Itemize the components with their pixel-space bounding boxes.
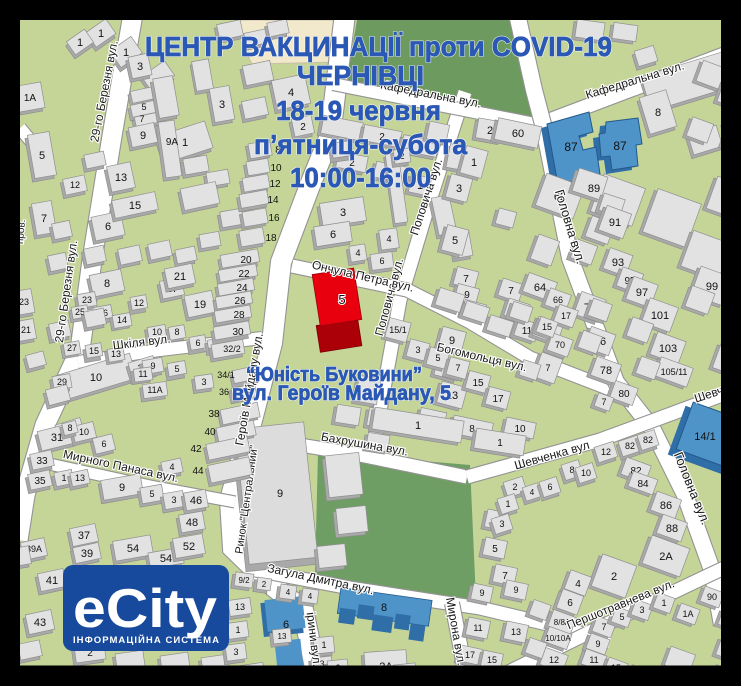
svg-text:7: 7	[601, 397, 606, 407]
svg-text:15: 15	[487, 655, 497, 665]
svg-text:101: 101	[651, 310, 669, 322]
svg-text:52: 52	[183, 541, 195, 553]
svg-text:1: 1	[235, 625, 240, 635]
svg-text:9: 9	[277, 488, 283, 500]
svg-text:2: 2	[611, 571, 617, 583]
svg-text:33: 33	[36, 456, 48, 467]
svg-text:35: 35	[34, 476, 46, 487]
svg-text:103: 103	[659, 343, 677, 355]
svg-text:9/2: 9/2	[238, 576, 250, 585]
svg-text:12: 12	[134, 298, 144, 308]
svg-text:19: 19	[194, 299, 206, 311]
svg-text:21: 21	[21, 325, 31, 335]
svg-text:9: 9	[479, 588, 484, 598]
svg-text:78: 78	[600, 365, 612, 377]
svg-text:3: 3	[171, 495, 176, 505]
svg-text:30: 30	[232, 327, 244, 338]
svg-text:23: 23	[19, 297, 29, 307]
svg-text:9: 9	[119, 482, 125, 494]
svg-text:8: 8	[104, 278, 110, 290]
svg-text:43: 43	[34, 617, 46, 629]
svg-text:86: 86	[660, 500, 672, 512]
svg-text:13: 13	[235, 602, 245, 612]
svg-text:1: 1	[98, 28, 104, 40]
svg-text:9: 9	[595, 639, 600, 649]
svg-text:6: 6	[379, 256, 384, 266]
svg-text:10: 10	[514, 424, 526, 435]
svg-text:14: 14	[117, 315, 127, 325]
svg-text:ЦЕНТР ВАКЦИНАЦІЇ проти COVID-1: ЦЕНТР ВАКЦИНАЦІЇ проти COVID-19	[145, 31, 612, 62]
svg-text:2: 2	[262, 580, 267, 589]
svg-text:1: 1	[497, 438, 503, 449]
svg-text:60: 60	[512, 128, 524, 140]
svg-text:46: 46	[190, 495, 202, 507]
svg-text:4: 4	[286, 588, 291, 597]
svg-text:4: 4	[308, 592, 313, 601]
svg-text:13: 13	[75, 473, 85, 483]
svg-text:18: 18	[265, 233, 277, 244]
svg-text:5: 5	[452, 235, 458, 247]
svg-text:20: 20	[240, 255, 252, 266]
svg-text:82: 82	[625, 441, 635, 451]
svg-text:11А: 11А	[147, 385, 162, 395]
svg-text:10/10А: 10/10А	[545, 634, 571, 643]
svg-text:1: 1	[505, 499, 510, 509]
svg-text:32/2: 32/2	[223, 344, 241, 354]
svg-text:17: 17	[561, 311, 571, 321]
svg-text:8: 8	[381, 602, 387, 614]
svg-text:3: 3	[201, 377, 206, 387]
svg-text:12: 12	[70, 180, 80, 190]
svg-text:54: 54	[127, 543, 139, 555]
svg-text:5: 5	[174, 364, 179, 374]
svg-text:7: 7	[601, 622, 606, 632]
svg-text:7: 7	[455, 363, 460, 373]
svg-text:6: 6	[547, 482, 552, 492]
svg-text:2А: 2А	[659, 551, 673, 563]
svg-text:15: 15	[129, 200, 141, 212]
svg-text:12: 12	[269, 179, 281, 190]
svg-text:37: 37	[78, 530, 90, 542]
svg-text:1: 1	[661, 598, 666, 608]
svg-text:3: 3	[219, 99, 225, 111]
svg-text:93: 93	[612, 257, 624, 269]
svg-text:6: 6	[195, 338, 200, 348]
svg-text:21: 21	[174, 271, 186, 283]
svg-text:10: 10	[90, 372, 102, 384]
svg-text:1: 1	[182, 137, 188, 149]
svg-text:23: 23	[82, 295, 92, 305]
svg-text:1: 1	[415, 420, 421, 432]
svg-text:54: 54	[160, 553, 172, 565]
svg-text:6: 6	[105, 221, 111, 233]
svg-text:48: 48	[186, 517, 198, 529]
svg-text:1: 1	[61, 473, 66, 483]
svg-text:3: 3	[137, 61, 143, 73]
svg-text:12: 12	[601, 447, 611, 457]
svg-text:3: 3	[499, 519, 504, 529]
svg-text:6: 6	[101, 439, 106, 449]
svg-text:64: 64	[534, 282, 546, 294]
svg-text:80: 80	[618, 389, 630, 400]
svg-text:7: 7	[508, 286, 514, 297]
svg-text:17: 17	[492, 394, 504, 405]
svg-text:42: 42	[190, 444, 202, 455]
svg-text:40: 40	[204, 427, 216, 438]
svg-text:82: 82	[643, 435, 653, 445]
svg-text:п’ятниця-субота: п’ятниця-субота	[254, 129, 467, 160]
svg-text:3: 3	[415, 345, 420, 355]
svg-text:87: 87	[613, 139, 627, 153]
svg-text:38: 38	[208, 409, 220, 420]
svg-text:3: 3	[340, 207, 346, 219]
svg-text:88: 88	[666, 523, 678, 535]
svg-text:22: 22	[238, 269, 250, 280]
svg-text:4: 4	[575, 579, 581, 590]
svg-text:5: 5	[492, 544, 498, 555]
svg-text:9: 9	[513, 585, 518, 595]
svg-text:13: 13	[511, 627, 521, 637]
svg-text:eCity: eCity	[73, 577, 217, 639]
svg-text:44: 44	[192, 466, 204, 477]
svg-text:1А: 1А	[24, 93, 37, 104]
svg-text:10: 10	[79, 427, 89, 437]
svg-text:4: 4	[530, 488, 535, 497]
svg-text:4: 4	[386, 234, 391, 244]
svg-text:89: 89	[588, 183, 600, 195]
svg-text:11: 11	[473, 623, 482, 633]
svg-text:34/1: 34/1	[217, 370, 235, 380]
svg-text:6: 6	[567, 598, 573, 609]
svg-text:4: 4	[355, 248, 360, 258]
svg-text:3: 3	[456, 183, 462, 195]
svg-text:39: 39	[81, 548, 93, 560]
svg-text:5: 5	[141, 102, 146, 112]
svg-text:7: 7	[41, 213, 47, 225]
svg-text:5: 5	[39, 150, 45, 162]
svg-text:97: 97	[636, 287, 648, 299]
svg-text:28: 28	[233, 310, 245, 321]
svg-text:9А: 9А	[166, 137, 179, 148]
svg-text:27: 27	[67, 343, 77, 353]
svg-text:12: 12	[549, 655, 559, 665]
svg-text:91: 91	[609, 217, 621, 229]
svg-text:105/11: 105/11	[661, 367, 688, 377]
svg-text:10:00-16:00: 10:00-16:00	[290, 162, 431, 193]
svg-text:11: 11	[589, 655, 598, 665]
svg-text:14: 14	[267, 195, 279, 206]
svg-text:1: 1	[77, 37, 83, 49]
svg-text:15: 15	[89, 346, 99, 356]
svg-text:15/1: 15/1	[389, 325, 407, 335]
svg-text:10: 10	[581, 468, 591, 478]
svg-text:9: 9	[140, 130, 146, 142]
svg-text:36: 36	[219, 387, 229, 397]
svg-text:15: 15	[472, 378, 484, 389]
svg-text:11: 11	[138, 369, 147, 379]
svg-text:13: 13	[115, 172, 127, 184]
svg-text:16: 16	[268, 213, 280, 224]
svg-text:ІНФОРМАЦІЙНА СИСТЕМА: ІНФОРМАЦІЙНА СИСТЕМА	[73, 634, 219, 646]
svg-text:5: 5	[338, 292, 345, 307]
svg-text:87: 87	[564, 140, 578, 154]
svg-text:8: 8	[655, 107, 661, 119]
svg-text:2: 2	[512, 482, 517, 492]
svg-text:6: 6	[330, 229, 336, 241]
svg-text:8: 8	[174, 327, 179, 337]
svg-text:1А: 1А	[682, 609, 693, 619]
svg-text:1: 1	[471, 157, 477, 169]
svg-text:26: 26	[234, 296, 246, 307]
svg-text:вул. Героїв Майдану, 5: вул. Героїв Майдану, 5	[232, 382, 451, 405]
svg-text:3: 3	[639, 605, 644, 615]
svg-text:3: 3	[233, 647, 238, 657]
svg-text:41: 41	[46, 575, 58, 587]
svg-text:5: 5	[149, 489, 154, 499]
svg-text:18-19 червня: 18-19 червня	[276, 95, 441, 126]
svg-text:13: 13	[278, 632, 287, 641]
svg-text:7: 7	[139, 114, 144, 124]
svg-text:90: 90	[707, 592, 717, 602]
svg-text:84: 84	[637, 479, 649, 490]
svg-text:14/1: 14/1	[694, 431, 715, 443]
svg-text:7: 7	[545, 363, 550, 373]
svg-text:8: 8	[67, 423, 72, 433]
svg-text:ЧЕРНІВЦІ: ЧЕРНІВЦІ	[297, 60, 424, 91]
svg-text:70: 70	[555, 340, 565, 350]
svg-text:66: 66	[553, 295, 563, 305]
svg-text:15: 15	[542, 322, 552, 332]
svg-text:5: 5	[619, 612, 624, 622]
svg-text:10: 10	[270, 163, 282, 174]
svg-text:7: 7	[463, 274, 469, 285]
